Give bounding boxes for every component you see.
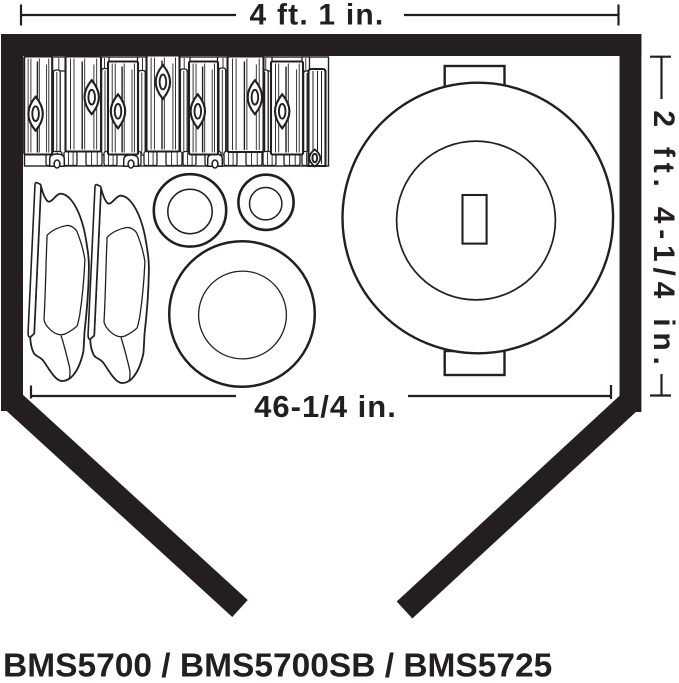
svg-text:2 ft. 4-1/4 in.: 2 ft. 4-1/4 in. — [647, 110, 679, 370]
svg-text:BMS5700 / BMS5700SB / BMS5725: BMS5700 / BMS5700SB / BMS5725 — [3, 648, 552, 683]
svg-text:46-1/4 in.: 46-1/4 in. — [254, 389, 397, 424]
svg-text:4 ft. 1 in.: 4 ft. 1 in. — [250, 0, 385, 32]
